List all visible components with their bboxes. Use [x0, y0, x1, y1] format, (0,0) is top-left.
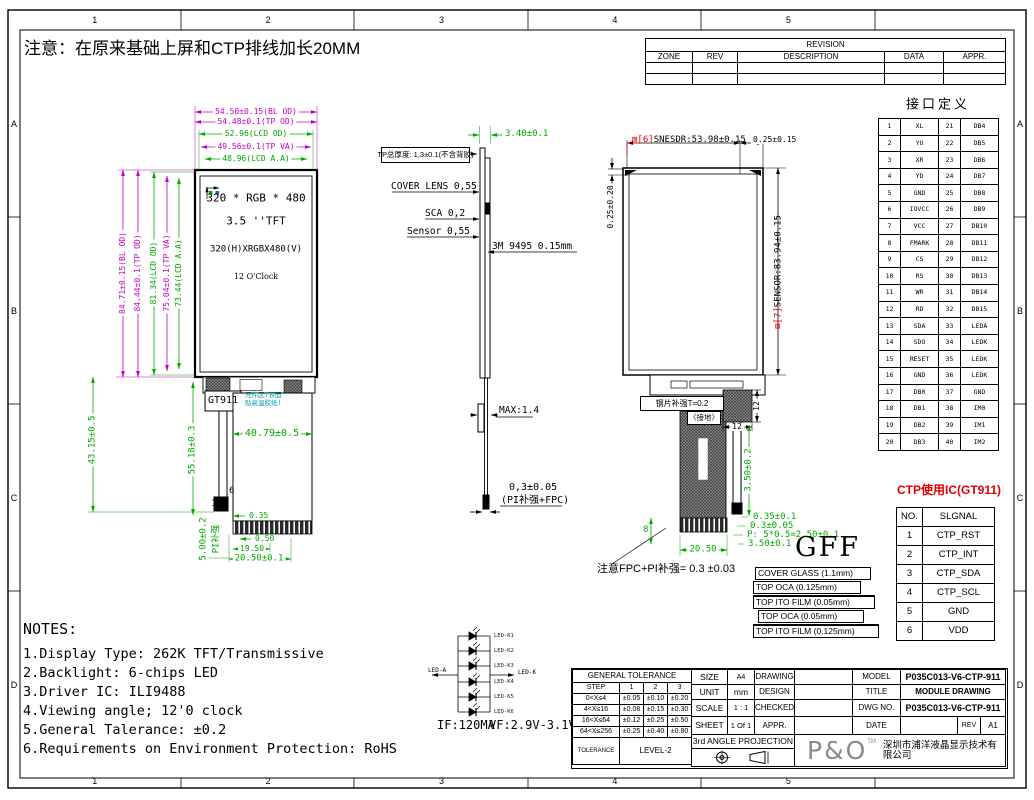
- led-branch-label: LED-K3: [494, 659, 514, 674]
- table-row: 20DB340IM2: [879, 434, 999, 451]
- checked-label: CHECKED: [754, 699, 795, 717]
- dim-tp-od-width: 54.48±0.1(TP OD): [215, 118, 296, 126]
- dim-350-tail: 3.50±0.2: [745, 446, 754, 493]
- dim-sensor-width-marker: ⊠[6]: [632, 135, 654, 145]
- table-row: 1XL21DB4: [879, 119, 999, 136]
- table-row: 1CTP_RST: [897, 527, 995, 546]
- tolerance-level-value: LEVEL-2: [620, 738, 692, 765]
- led-branch-label: LED-K5: [494, 690, 514, 705]
- gff-structure-label: GFF: [795, 534, 860, 561]
- dim-bl-od-width: 54.50±0.15(BL OD): [213, 108, 299, 116]
- dim-tp-va-width: 49.56±0.1(TP VA): [215, 143, 296, 151]
- drawing-label: DRAWING: [754, 669, 795, 685]
- panel-clock-text: 12 O'Clock: [234, 273, 278, 281]
- gff-stack-table: COVER GLASS (1.1mm)TOP OCA (0.125mm)TOP …: [753, 567, 881, 639]
- table-row: 9CS29DB12: [879, 251, 999, 268]
- rev-label: REV: [957, 716, 981, 735]
- dim-fpc-thickness-note: (PI补强+FPC): [501, 496, 569, 506]
- table-row: STEP123: [573, 683, 692, 694]
- table-row: 6VDD: [897, 622, 995, 641]
- tolerance-level-label: TOLERANCE: [573, 738, 620, 765]
- table-row: 18DB138IM0: [879, 401, 999, 418]
- revision-table: REVISION ZONEREVDESCRIPTIONDATAAPPR.: [645, 38, 1006, 85]
- table-row: [646, 74, 1006, 85]
- drawing-sheet: 12345 12345 ABCD ABCD 注意：在原来基础上屏和CTP排线加长…: [0, 0, 1034, 800]
- gff-stack-layer: TOP OCA (0.125mm): [753, 581, 861, 594]
- projection-symbol-circle: [712, 750, 734, 765]
- led-branch-label: LED-K1: [494, 629, 514, 644]
- dim-fpc-thickness: 0,3±0.05: [509, 483, 557, 493]
- border-col-label: 5: [702, 10, 875, 30]
- tp-thickness-callout: TP总厚度: 1,3±0.1(不含背胶): [381, 147, 470, 163]
- table-row: 7VCC27DB10: [879, 218, 999, 235]
- pi-stiffener-label: PI补强: [213, 525, 222, 554]
- border-col-label: 4: [528, 10, 701, 30]
- dim-8-ctp: 8: [643, 526, 648, 535]
- sca-label: SCA 0,2: [425, 209, 465, 219]
- panel-format-text: 320(H)XRGBX480(V): [210, 246, 302, 255]
- notes-title: NOTES:: [23, 622, 77, 637]
- table-row: 3CTP_SDA: [897, 565, 995, 584]
- gff-stack-layer: TOP ITO FILM (0.125mm): [753, 624, 879, 638]
- led-symbols: [458, 627, 490, 716]
- border-col-label: 5: [702, 774, 875, 787]
- led-vf-spec: VF:2.9V-3.1V: [489, 719, 576, 731]
- table-row: 3XR23DB6: [879, 152, 999, 169]
- border-col-label: 2: [181, 10, 354, 30]
- table-row: 14SDO34LEDK: [879, 334, 999, 351]
- dim-1950: 19.50: [238, 545, 266, 553]
- sheet-value: 1 Of 1: [727, 716, 755, 735]
- border-band-right: ABCD: [1014, 30, 1026, 778]
- border-row-label: B: [8, 217, 20, 404]
- tape-3m-label: 3M 9495 0.15mm: [492, 242, 572, 252]
- table-row: 4<X≤16±0.08±0.15±0.30: [573, 705, 692, 716]
- dim-pi-height: 5.00±0.2: [200, 515, 209, 562]
- panel-resolution-text: 320 * RGB * 480: [206, 193, 305, 204]
- dim-lcd-aa-height: 73.44(LCD A.A): [175, 237, 183, 308]
- table-row: 13SDA33LEDA: [879, 318, 999, 335]
- dim-035: 0.35: [247, 512, 270, 520]
- border-col-label: 4: [528, 774, 701, 787]
- table-row: 4YD24DB7: [879, 168, 999, 185]
- table-row: 4CTP_SCL: [897, 584, 995, 603]
- border-row-label: A: [1014, 30, 1026, 217]
- title-value: MODULE DRAWING: [900, 684, 1006, 700]
- model-value: P035C013-V6-CTP-911: [900, 669, 1006, 685]
- ctp-ic-title: CTP使用IC(GT911): [897, 484, 1001, 496]
- pin-number-1: 1: [211, 500, 216, 509]
- side-view-dims-green: [468, 126, 502, 144]
- checked-value: [794, 699, 853, 717]
- border-col-label: 1: [8, 10, 181, 30]
- table-row: 12RD32DB15: [879, 301, 999, 318]
- dim-lcd-aa-width: 48.96(LCD A.A): [220, 155, 291, 163]
- gff-stack-layer: TOP OCA (0.05mm): [758, 610, 864, 623]
- dim-sensor-width-text: SNESDR:53.98±0.15: [654, 135, 746, 145]
- dim-max-14: MAX:1.4: [499, 406, 539, 416]
- dwg-no-label: DWG NO.: [852, 699, 901, 717]
- rev-value: A1: [980, 716, 1006, 735]
- cover-lens-label: COVER LENS 0,55: [391, 182, 477, 192]
- projection-label: 3rd ANGLE PROJECTION: [691, 734, 795, 749]
- design-label: DESIGN: [754, 684, 795, 700]
- border-col-label: 1: [8, 774, 181, 787]
- fpc-pi-note: 注意FPC+PI补强= 0.3 ±0.03: [597, 564, 735, 575]
- dim-fpc-width: 40.79±0.5: [243, 429, 301, 439]
- border-row-label: A: [8, 30, 20, 217]
- border-col-label: 2: [181, 774, 354, 787]
- dim-tail-43: 43.15±0.5: [89, 414, 98, 467]
- company-name: 深圳市浦洋液晶显示技术有限公司: [883, 741, 1005, 760]
- table-row: 6IOVCC26DB9: [879, 201, 999, 218]
- appr-value: [794, 716, 853, 735]
- company-logo-tm: TM: [867, 739, 876, 745]
- border-band-bottom: 12345: [8, 774, 875, 787]
- dwg-no-value: P035C013-V6-CTP-911: [900, 699, 1006, 717]
- table-row: 5GND25DB8: [879, 185, 999, 202]
- table-row: 15RESET35LEDK: [879, 351, 999, 368]
- table-row: 16GND36LEDK: [879, 367, 999, 384]
- table-row: 0<X≤4±0.05±0.10±0.20: [573, 694, 692, 705]
- table-row: 2YU22DB5: [879, 135, 999, 152]
- border-band-top: 12345: [8, 10, 875, 30]
- led-anode-label: LED-A: [428, 668, 446, 674]
- projection-symbols: [691, 748, 795, 767]
- dim-tail-55: 55.18±0.3: [189, 424, 198, 477]
- table-row: 10RS30DB13: [879, 268, 999, 285]
- dim-sensor-height: ⊠[7]SENSOR:83.94±0.15: [775, 215, 784, 329]
- pin-number-6: 6: [229, 487, 234, 496]
- panel-size-text: 3.5 ''TFT: [226, 216, 286, 227]
- led-if-spec: IF:120MA: [437, 719, 495, 731]
- dim-2050-ctp: 20.50: [687, 546, 718, 555]
- general-tolerance-title: GENERAL TOLERANCE: [573, 670, 692, 683]
- dim-025-right: 0.25±0.15: [751, 136, 798, 144]
- sensor-label: Sensor 0,55: [407, 227, 470, 237]
- ctp-signal-table: NO.SLGNAL1CTP_RST2CTP_INT3CTP_SDA4CTP_SC…: [896, 507, 995, 641]
- dim-12-horizontal: 12: [730, 423, 744, 431]
- size-label: SIZE: [691, 669, 728, 685]
- border-row-label: C: [1014, 404, 1026, 591]
- unit-value: mm: [727, 684, 755, 700]
- table-row: 17DB037GND: [879, 384, 999, 401]
- dim-sensor-height-marker: ⊠[7]: [774, 307, 784, 329]
- table-row: NO.SLGNAL: [897, 508, 995, 527]
- scale-value: 1 : 1: [727, 699, 755, 717]
- led-branch-labels: LED-K1LED-K2LED-K3LED-K4LED-K5LED-K6: [494, 629, 514, 720]
- model-label: MODEL: [852, 669, 901, 685]
- company-cell: P&O TM 深圳市浦洋液晶显示技术有限公司: [794, 734, 1006, 767]
- note-item: 6.Requirements on Environment Protection…: [23, 740, 397, 759]
- interface-table-title: 接口定义: [906, 98, 970, 111]
- steel-stiffener-callout: 钢片补强T=0.2: [640, 396, 724, 411]
- table-row: 16<X≤64±0.12±0.25±0.50: [573, 716, 692, 727]
- scale-label: SCALE: [691, 699, 728, 717]
- interface-pin-table: 1XL21DB42YU22DB53XR23DB64YD24DB75GND25DB…: [878, 118, 999, 451]
- notes-list: 1.Display Type: 262K TFT/Transmissive2.B…: [23, 645, 397, 759]
- title-label: TITLE: [852, 684, 901, 700]
- table-row: [646, 63, 1006, 74]
- border-row-label: D: [1014, 591, 1026, 778]
- sheet-label: SHEET: [691, 716, 728, 735]
- unit-label: UNIT: [691, 684, 728, 700]
- top-caution-note: 注意：在原来基础上屏和CTP排线加长20MM: [24, 40, 360, 57]
- general-tolerance-table: GENERAL TOLERANCE STEP1230<X≤4±0.05±0.10…: [572, 669, 692, 765]
- border-row-label: D: [8, 591, 20, 778]
- component-area-note: 元件区(表面贴高温胶纸): [245, 392, 283, 408]
- gff-stack-layer: COVER GLASS (1.1mm): [755, 567, 871, 580]
- dim-sensor-height-text: SENSOR:83.94±0.15: [774, 215, 784, 307]
- dim-tp-va-height: 75.04±0.1(TP VA): [163, 232, 171, 313]
- note-item: 1.Display Type: 262K TFT/Transmissive: [23, 645, 397, 664]
- side-view-outline: [392, 148, 577, 512]
- dim-sensor-width: ⊠[6]SNESDR:53.98±0.15: [632, 136, 746, 145]
- note-item: 4.Viewing angle; 12'0 clock: [23, 702, 397, 721]
- gff-stack-layer: TOP ITO FILM (0.05mm): [753, 595, 875, 609]
- grounding-label: 〈接地〉: [687, 411, 721, 425]
- note-item: 5.General Talerance: ±0.2: [23, 721, 397, 740]
- table-row: 8FMARK28DB11: [879, 235, 999, 252]
- date-value: [900, 716, 958, 735]
- dim-12-vertical: 12: [753, 399, 761, 413]
- size-value: A4: [727, 669, 755, 685]
- border-row-label: B: [1014, 217, 1026, 404]
- dim-050: 0.50: [253, 535, 276, 543]
- led-cathode-label: LED-K: [518, 670, 536, 676]
- table-row: ZONEREVDESCRIPTIONDATAAPPR.: [646, 52, 1006, 63]
- appr-label: APPR.: [754, 716, 795, 735]
- border-row-label: C: [8, 404, 20, 591]
- table-row: 19DB239IM1: [879, 417, 999, 434]
- dim-350b-ctp: 3.50±0.1: [748, 540, 791, 549]
- table-row: 64<X≤256±0.25±0.40±0.80: [573, 727, 692, 738]
- projection-symbol-cone: [748, 750, 774, 765]
- note-item: 3.Driver IC: ILI9488: [23, 683, 397, 702]
- dim-025-left: 0.25±0.20: [607, 183, 615, 230]
- drawing-value: [794, 669, 853, 685]
- table-row: 5GND: [897, 603, 995, 622]
- dim-lcd-od-height: 81.34(LCD OD): [150, 240, 158, 307]
- company-logo: P&O: [807, 738, 867, 763]
- note-item: 2.Backlight: 6-chips LED: [23, 664, 397, 683]
- table-row: 2CTP_INT: [897, 546, 995, 565]
- gt911-chip-label: GT911: [208, 396, 238, 406]
- date-label: DATE: [852, 716, 901, 735]
- design-value: [794, 684, 853, 700]
- revision-title: REVISION: [646, 39, 1006, 52]
- dim-tp-od-height: 84.44±0.1(TP OD): [134, 232, 142, 313]
- dim-340: 3.40±0.1: [505, 130, 548, 139]
- led-branch-label: LED-K2: [494, 644, 514, 659]
- border-band-left: ABCD: [8, 30, 20, 778]
- dim-lcd-od-width: 52.96(LCD OD): [223, 130, 290, 138]
- border-col-label: 3: [355, 774, 528, 787]
- dim-2050: 20.50±0.1: [233, 555, 286, 564]
- table-row: 11WR31DB14: [879, 284, 999, 301]
- sensor-view-outline: [608, 140, 786, 564]
- led-branch-label: LED-K4: [494, 675, 514, 690]
- border-col-label: 3: [355, 10, 528, 30]
- dim-bl-od-height: 84.71±0.15(BL OD): [119, 230, 127, 316]
